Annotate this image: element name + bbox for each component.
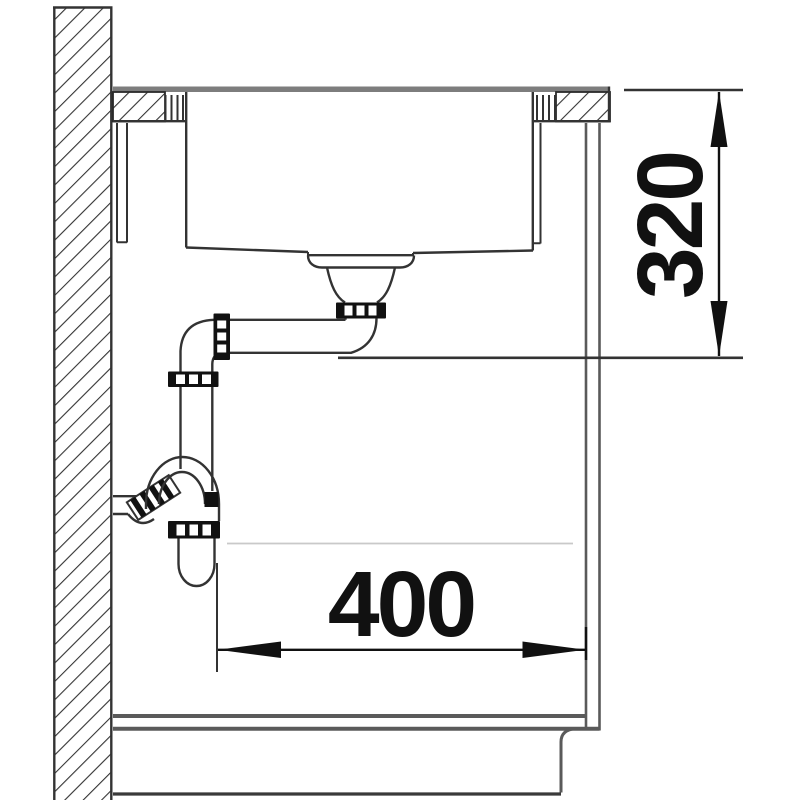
worktop: [113, 87, 610, 122]
wall-hatching: [54, 7, 113, 800]
arrow-right-icon: [523, 642, 586, 659]
pipe-top-edge: [214, 318, 346, 320]
drain-strainer: [308, 252, 414, 319]
arrow-up-icon: [711, 92, 728, 148]
sink-apron-right: [534, 123, 541, 244]
compression-joint: [205, 492, 219, 507]
tailpipe-curve: [351, 318, 377, 353]
trap-cup: [179, 539, 215, 587]
siphon-trap: [113, 457, 220, 586]
dimension-400-label: 400: [328, 552, 474, 656]
strainer-flange: [308, 255, 414, 267]
cabinet-plinth: [561, 729, 575, 793]
sink-apron-left: [117, 123, 127, 243]
elbow-outer: [181, 320, 215, 372]
sink-clamp-left: [166, 95, 184, 120]
threaded-connector: [127, 475, 180, 520]
drawing-canvas: 320 400: [0, 0, 800, 800]
installation-drawing: 320 400: [0, 0, 800, 800]
drain-pipe: [168, 314, 377, 492]
dimension-320-label: 320: [618, 153, 722, 299]
worktop-right-block: [556, 92, 610, 122]
wall-section: [53, 7, 113, 800]
dimension-400: 400: [217, 552, 586, 672]
downpipe: [181, 387, 213, 491]
arrow-down-icon: [711, 301, 728, 357]
worktop-left-block: [113, 92, 165, 122]
sink-bowl: [117, 92, 541, 253]
cabinet-bottom-shelf: [113, 716, 600, 729]
worktop-surface: [113, 87, 610, 93]
bowl-bottom: [186, 248, 533, 254]
cabinet-side-panel: [586, 123, 600, 731]
sink-clamp-right: [537, 95, 555, 120]
arrow-left-icon: [218, 642, 281, 659]
strainer-cup: [327, 268, 395, 303]
